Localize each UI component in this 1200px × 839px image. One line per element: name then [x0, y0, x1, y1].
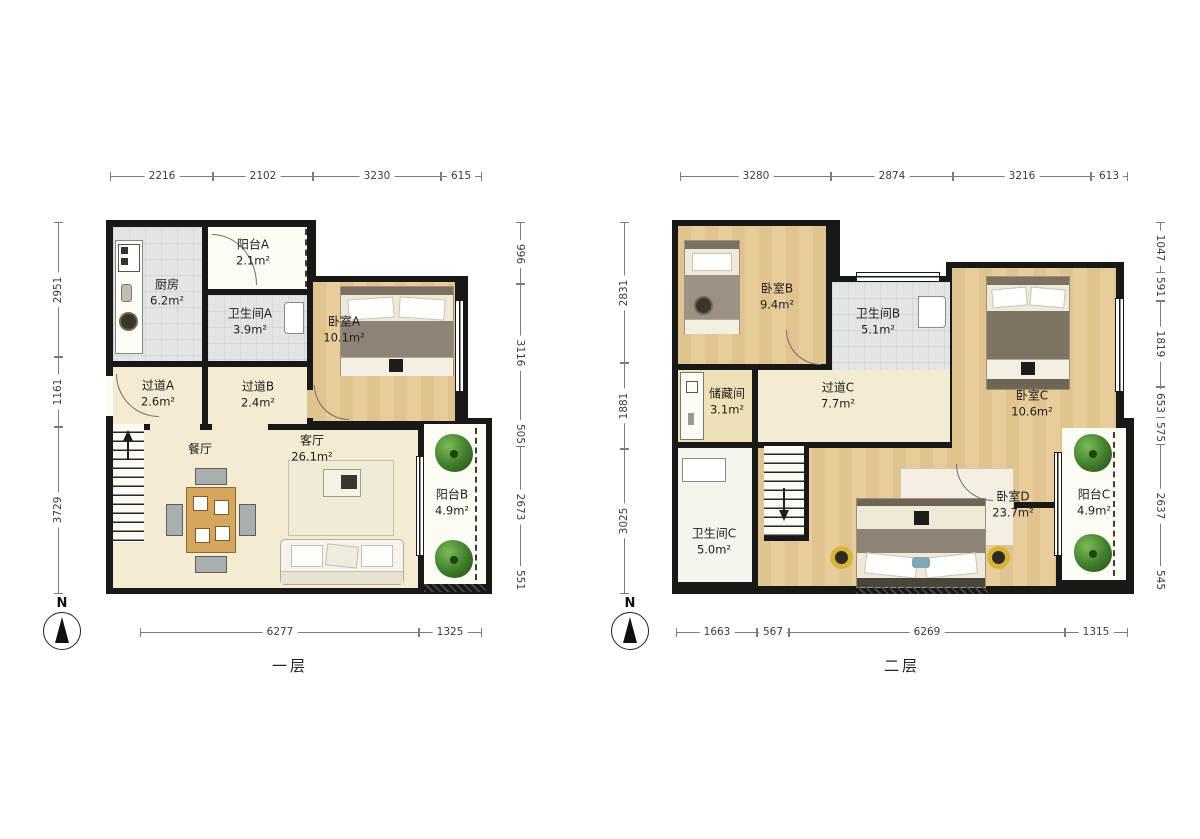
room-area: 26.1m² [291, 449, 332, 464]
dimension: 2874 [830, 172, 954, 181]
bed-pillow [991, 287, 1028, 309]
dining-chair-icon [166, 504, 183, 536]
window [455, 300, 464, 392]
room-area: 2.4m² [241, 395, 275, 410]
bed-headboard [685, 241, 739, 249]
wall-opening [106, 376, 113, 416]
bed-pillow [1029, 287, 1066, 309]
compass-icon: N [40, 596, 84, 650]
dimension: 1663 [676, 628, 758, 637]
dining-chair-icon [239, 504, 256, 536]
room-name: 阳台C [1077, 488, 1111, 504]
room-name: 卫生间A [228, 307, 272, 323]
tv-screen-icon [341, 475, 357, 489]
closet-handle [686, 381, 698, 393]
bed-tv-icon [1021, 362, 1035, 375]
dimension: 3216 [952, 172, 1092, 181]
room-label-balcony-b: 阳台B 4.9m² [435, 488, 469, 519]
room-label-bathroom-b: 卫生间B 5.1m² [856, 307, 900, 338]
bed-icon [856, 498, 986, 588]
room-name: 卧室D [992, 490, 1033, 506]
room-area: 5.0m² [692, 542, 736, 557]
bed-tv-icon [914, 511, 929, 525]
dimension: 3729 [54, 426, 63, 594]
room-name: 餐厅 [188, 442, 212, 458]
room-area: 3.9m² [228, 322, 272, 337]
room-area: 6.2m² [150, 293, 184, 308]
room-name: 储藏间 [709, 387, 745, 403]
dimension: 996 [516, 222, 525, 285]
room-area: 9.4m² [760, 297, 794, 312]
dimension: 2951 [54, 222, 63, 358]
plate-icon [214, 500, 229, 515]
bed-pillow [692, 253, 732, 271]
room-name: 卫生间B [856, 307, 900, 323]
room-name: 过道A [141, 379, 175, 395]
bed-foot-bench [685, 319, 739, 334]
chair-icon [694, 296, 713, 315]
room-area: 7.7m² [821, 396, 855, 411]
tv-console-icon [288, 460, 394, 536]
window [856, 272, 940, 282]
bed-headboard [341, 287, 453, 295]
counter-item-icon [121, 284, 132, 302]
dimension: 1315 [1064, 628, 1128, 637]
dimension: 567 [756, 628, 790, 637]
room-label-bedroom-d: 卧室D 23.7m² [992, 490, 1033, 521]
bed-pillow [864, 552, 918, 578]
wall-opening [212, 424, 268, 430]
room-name: 过道C [821, 381, 855, 397]
bed-duvet [857, 529, 985, 553]
room-name: 卧室B [760, 282, 794, 298]
dimension: 591 [1156, 272, 1165, 302]
dimension: 3230 [312, 172, 442, 181]
plate-icon [193, 496, 208, 511]
wall-opening [150, 424, 200, 430]
balcony-open-edge [475, 428, 477, 580]
dimension: 545 [1156, 566, 1165, 594]
room-name: 厨房 [150, 278, 184, 294]
room-label-bedroom-c: 卧室C 10.6m² [1011, 389, 1052, 420]
dimension: 1047 [1156, 222, 1165, 274]
room-name: 卧室A [323, 315, 364, 331]
compass-needle-icon [623, 617, 637, 643]
toilet-icon [284, 302, 304, 334]
wall-opening [307, 390, 313, 418]
dimension: 2637 [1156, 444, 1165, 568]
window [416, 456, 424, 556]
dimension: 3280 [680, 172, 832, 181]
stove-burner-icon [121, 247, 128, 254]
room-area: 10.6m² [1011, 404, 1052, 419]
compass-needle-icon [55, 617, 69, 643]
hatch-marks [856, 586, 988, 594]
room-area: 23.7m² [992, 505, 1033, 520]
sofa-cushion [291, 545, 323, 567]
dimension: 653 [1156, 386, 1165, 419]
dimension: 575 [1156, 417, 1165, 446]
room-name: 阳台A [236, 238, 270, 254]
room-label-kitchen: 厨房 6.2m² [150, 278, 184, 309]
room-name: 卧室C [1011, 389, 1052, 405]
dimension: 2102 [212, 172, 314, 181]
bed-tv-icon [389, 359, 403, 372]
plate-icon [195, 528, 210, 543]
bed-pillow [924, 552, 978, 578]
dimension: 613 [1090, 172, 1128, 181]
dimension: 551 [516, 566, 525, 594]
room-area: 2.6m² [141, 394, 175, 409]
sink-icon [119, 312, 138, 331]
floor1-caption: 一层 [272, 655, 308, 676]
room-name: 客厅 [291, 434, 332, 450]
dimension: 2673 [516, 446, 525, 568]
room-label-storage: 储藏间 3.1m² [709, 387, 745, 418]
bed-headboard [987, 277, 1069, 285]
plate-icon [215, 526, 230, 541]
room-name: 过道B [241, 380, 275, 396]
floorplan-canvas: 厨房 6.2m² 阳台A 2.1m² 卫生间A 3.9m² 卧室A 10.1m²… [0, 0, 1200, 839]
dimension: 1325 [418, 628, 482, 637]
window [1115, 298, 1124, 392]
room-area: 2.1m² [236, 253, 270, 268]
dining-table-icon [186, 487, 236, 553]
dimension: 1881 [620, 362, 629, 450]
room-label-hallway-b: 过道B 2.4m² [241, 380, 275, 411]
nightstand-icon [987, 546, 1010, 569]
room-label-bathroom-a: 卫生间A 3.9m² [228, 307, 272, 338]
dimension: 615 [440, 172, 482, 181]
dimension: 6269 [788, 628, 1066, 637]
window [1054, 452, 1062, 556]
hatch-marks [424, 584, 486, 592]
room-hallway-c-east [832, 420, 946, 442]
nightstand-icon [830, 546, 853, 569]
sofa-back [281, 571, 403, 584]
dimension: 505 [516, 420, 525, 448]
plant-icon [435, 434, 473, 472]
room-name: 阳台B [435, 488, 469, 504]
sofa-cushion [361, 545, 393, 567]
sofa-icon [280, 539, 404, 585]
dimension: 3025 [620, 448, 629, 594]
sink-icon [682, 458, 726, 482]
balcony-open-edge [1113, 432, 1115, 576]
room-area: 4.9m² [435, 503, 469, 518]
bed-foot-rail [857, 499, 985, 506]
floor2-caption: 二层 [884, 655, 920, 676]
room-label-bedroom-b: 卧室B 9.4m² [760, 282, 794, 313]
dining-chair-icon [195, 556, 227, 573]
balcony-open-edge [305, 229, 307, 287]
room-label-living: 客厅 26.1m² [291, 434, 332, 465]
dimension: 3116 [516, 283, 525, 422]
dimension: 2831 [620, 222, 629, 364]
bed-pillow [398, 296, 445, 320]
room-label-hallway-c: 过道C 7.7m² [821, 381, 855, 412]
stairs-arrow-stem [783, 488, 785, 510]
plant-icon [435, 540, 473, 578]
room-label-dining: 餐厅 [188, 442, 212, 458]
room-label-balcony-c: 阳台C 4.9m² [1077, 488, 1111, 519]
stairs-arrow-stem [127, 440, 129, 460]
stove-burner-icon [121, 258, 128, 265]
room-name: 卫生间C [692, 527, 736, 543]
dimension: 6277 [140, 628, 420, 637]
bed-cushion-icon [912, 557, 930, 568]
room-area: 10.1m² [323, 330, 364, 345]
bed-icon [986, 276, 1070, 390]
bed-duvet [987, 311, 1069, 359]
plant-icon [1074, 434, 1112, 472]
room-label-balcony-a: 阳台A 2.1m² [236, 238, 270, 269]
room-label-bathroom-c: 卫生间C 5.0m² [692, 527, 736, 558]
toilet-icon [918, 296, 946, 328]
bed-icon [684, 240, 740, 334]
dining-chair-icon [195, 468, 227, 485]
bed-duvet [685, 275, 739, 319]
compass-n-label: N [40, 596, 84, 611]
room-area: 4.9m² [1077, 503, 1111, 518]
room-area: 3.1m² [709, 402, 745, 417]
sofa-cushion [325, 543, 359, 568]
compass-icon: N [608, 596, 652, 650]
room-label-hallway-a: 过道A 2.6m² [141, 379, 175, 410]
stairs-down-arrow-icon [779, 510, 789, 521]
compass-n-label: N [608, 596, 652, 611]
dimension: 1819 [1156, 300, 1165, 388]
stairs-icon [764, 446, 809, 541]
room-area: 5.1m² [856, 322, 900, 337]
plant-icon [1074, 534, 1112, 572]
closet-icon [680, 372, 704, 440]
room-label-bedroom-a: 卧室A 10.1m² [323, 315, 364, 346]
closet-handle [688, 413, 694, 425]
bed-foot-rail [987, 379, 1069, 389]
dimension: 1161 [54, 356, 63, 428]
dimension: 2216 [110, 172, 214, 181]
